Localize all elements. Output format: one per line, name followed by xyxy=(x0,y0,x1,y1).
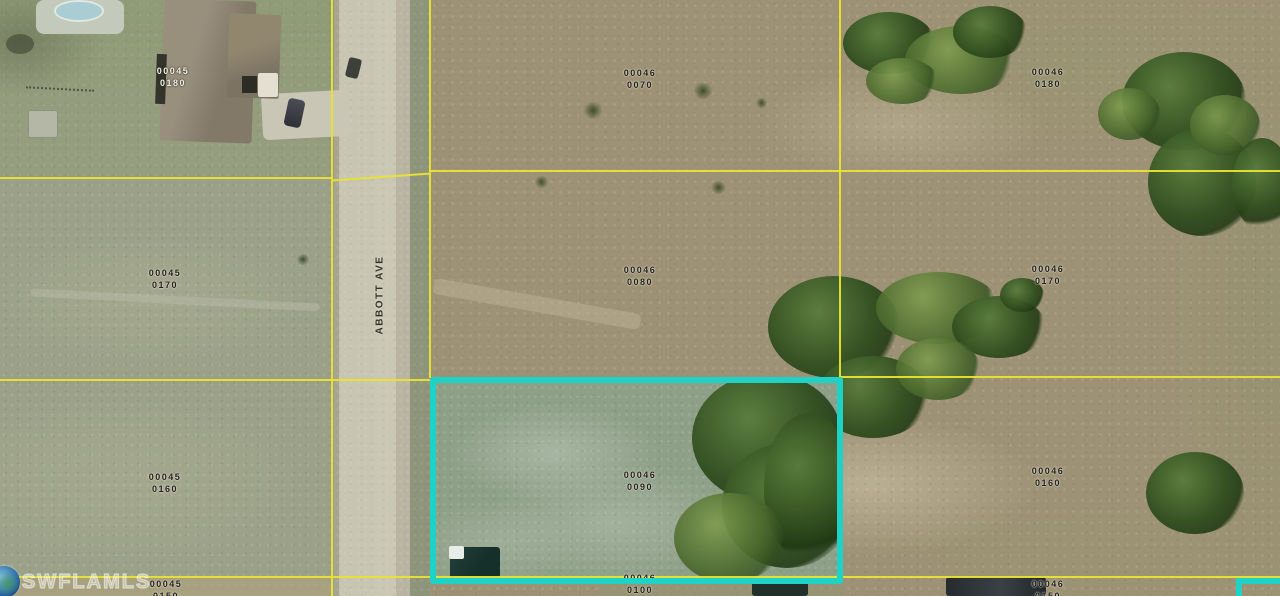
parcel-label-00045-0170: 00045 0170 xyxy=(149,268,182,291)
parcel-id-line1: 00045 xyxy=(157,66,190,78)
parcel-line-horizontal-mid-east xyxy=(839,376,1280,378)
watermark-text: SWFLAMLS xyxy=(22,571,151,594)
parcel-id-line2: 0100 xyxy=(624,585,657,596)
tree-cluster xyxy=(1190,95,1260,155)
shrub-icon xyxy=(582,102,604,119)
parcel-id-line2: 0150 xyxy=(1032,591,1065,596)
parcel-id-line1: 00045 xyxy=(150,579,183,591)
parcel-id-line1: 00046 xyxy=(1032,264,1065,276)
parcel-id-line2: 0150 xyxy=(150,591,183,596)
parcel-id-line1: 00046 xyxy=(1032,67,1065,79)
garage-door xyxy=(242,76,257,93)
swimming-pool xyxy=(54,0,104,22)
highlight-boundary[interactable] xyxy=(430,377,843,584)
parcel-label-00046-0070: 00046 0070 xyxy=(624,68,657,91)
tree-cluster xyxy=(866,58,938,104)
parcel-id-line1: 00046 xyxy=(624,265,657,277)
parcel-id-line2: 0180 xyxy=(157,78,190,90)
shed xyxy=(28,110,58,138)
parcel-label-00046-0160: 00046 0160 xyxy=(1032,466,1065,489)
parcel-label-00045-0160: 00045 0160 xyxy=(149,472,182,495)
tree-cluster xyxy=(1146,452,1244,534)
parcel-id-line1: 00046 xyxy=(1032,579,1065,591)
shrub-icon xyxy=(296,254,310,265)
parcel-line-vertical-road-west xyxy=(331,0,333,596)
parcel-id-line1: 00045 xyxy=(149,472,182,484)
parcel-line-vertical-road-east xyxy=(429,0,431,378)
parcel-label-00045-0180: 00045 0180 xyxy=(157,66,190,89)
aerial-parcel-map[interactable]: ABBOTT AVE 00045 0180 00046 0070 00046 0… xyxy=(0,0,1280,596)
parcel-line-horizontal-top-east xyxy=(429,170,1280,172)
parcel-label-00046-0080: 00046 0080 xyxy=(624,265,657,288)
parcel-id-line2: 0160 xyxy=(149,484,182,496)
parcel-line-horizontal-mid-west xyxy=(0,379,333,381)
shrub-icon xyxy=(534,176,549,188)
yard-clutter xyxy=(6,34,34,54)
parcel-id-line1: 00046 xyxy=(624,68,657,80)
tree-cluster xyxy=(953,6,1027,58)
parcel-id-line2: 0170 xyxy=(1032,276,1065,288)
parcel-id-line2: 0080 xyxy=(624,277,657,289)
parcel-line-road-crossing-mid xyxy=(332,379,432,381)
parcel-label-00046-0150: 00046 0150 xyxy=(1032,579,1065,596)
highlight-boundary-adjacent-corner xyxy=(1236,578,1280,596)
parcel-label-00046-0170: 00046 0170 xyxy=(1032,264,1065,287)
shrub-icon xyxy=(710,181,727,194)
parcel-label-00046-0180: 00046 0180 xyxy=(1032,67,1065,90)
parcel-line-vertical-center xyxy=(839,0,841,377)
globe-icon xyxy=(0,566,20,596)
parcel-id-line2: 0070 xyxy=(624,80,657,92)
parcel-id-line2: 0160 xyxy=(1032,478,1065,490)
garage-pad xyxy=(258,73,278,97)
mls-watermark: SWFLAMLS xyxy=(0,566,151,596)
tree-cluster xyxy=(896,338,980,400)
parcel-id-line2: 0180 xyxy=(1032,79,1065,91)
street-name-label: ABBOTT AVE xyxy=(375,256,386,335)
shrub-icon xyxy=(692,83,714,99)
shrub-icon xyxy=(755,98,768,108)
parcel-line-horizontal-top-west xyxy=(0,177,333,179)
parcel-id-line2: 0170 xyxy=(149,280,182,292)
parcel-label-00045-0150: 00045 0150 xyxy=(150,579,183,596)
tree-cluster xyxy=(1098,88,1160,140)
parcel-id-line1: 00045 xyxy=(149,268,182,280)
parcel-id-line1: 00046 xyxy=(1032,466,1065,478)
